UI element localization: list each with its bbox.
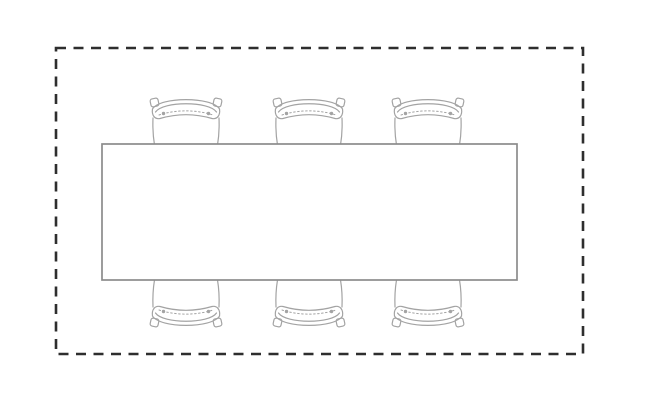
chair-top (273, 98, 345, 145)
chair-top (392, 98, 464, 145)
chair-bottom (273, 280, 345, 327)
chair-top (150, 98, 222, 145)
furniture-layout-diagram (0, 0, 660, 400)
chair-bottom (150, 280, 222, 327)
chair-bottom (392, 280, 464, 327)
dining-table (102, 144, 517, 280)
floor-plan-canvas (0, 0, 660, 400)
